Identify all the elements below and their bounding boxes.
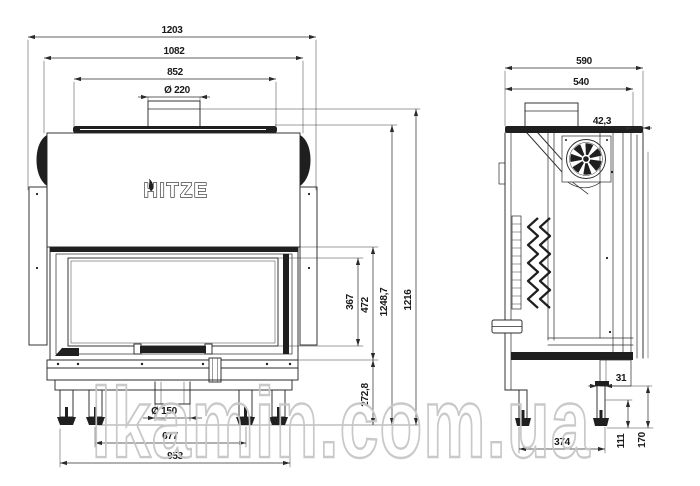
hitze-logo: HITZE [143, 179, 208, 203]
dim-label-door-height: 472 [360, 296, 371, 313]
dim-label-overall-width: 1203 [161, 25, 183, 36]
front-flue-collar [148, 101, 200, 127]
dim-front-overall-width: 1203 [28, 25, 316, 37]
side-heat-exchanger-fins [512, 216, 550, 309]
side-left-tab [499, 163, 505, 184]
adjustable-foot [57, 417, 76, 425]
hitze-logo-text: HITZE [143, 180, 208, 202]
side-top-plate [505, 126, 643, 133]
dim-front-body-width: 1082 [44, 46, 303, 58]
dim-label-body-depth: 540 [573, 77, 590, 88]
dim-glass-height: 367 [345, 258, 358, 346]
front-top-plate [73, 126, 277, 133]
fireplace-technical-drawing: HITZE [0, 0, 700, 486]
dim-flue-diameter: Ø 220 [138, 85, 210, 97]
dim-side-body-depth: 540 [505, 77, 633, 89]
dim-label-top-plate-width: 852 [167, 67, 184, 78]
door-hinge-strip [283, 254, 289, 354]
adjustable-foot [593, 418, 609, 426]
door-glass [68, 258, 278, 346]
side-door-handle [492, 320, 522, 333]
front-left-edge-curve [37, 135, 48, 186]
dim-label-flue-diameter: Ø 220 [164, 85, 190, 96]
dim-label-glass-height: 367 [345, 293, 356, 310]
dim-label-height-with-collar: 1248,7 [379, 287, 390, 317]
front-right-edge-curve [300, 135, 311, 186]
watermark: lkamin.com.ua [91, 368, 590, 479]
dim-front-top-plate-width: 852 [74, 67, 276, 79]
dim-label-base-clearance: 170 [637, 431, 648, 448]
dim-side-overall-depth: 590 [505, 56, 643, 68]
front-side-wings [29, 187, 317, 345]
dim-label-foot-height: 111 [616, 433, 627, 448]
door-handle [134, 344, 212, 354]
dim-label-leg-thickness: 31 [616, 373, 627, 384]
dim-label-body-width: 1082 [163, 46, 185, 57]
convection-fan [562, 136, 611, 182]
technical-drawing-page: HITZE [0, 0, 700, 486]
dim-side-base-clearance: 170 [637, 386, 648, 448]
side-flue-collar [525, 103, 578, 127]
dim-label-overall-depth: 590 [576, 56, 593, 67]
dim-label-rear-offset: 42,3 [593, 116, 612, 127]
door-corner-bracket [55, 348, 79, 356]
dim-door-height: 472 [360, 247, 373, 360]
dim-side-foot-height: 111 [616, 400, 628, 448]
front-door [50, 247, 298, 360]
dim-label-total-height: 1216 [403, 289, 414, 311]
zigzag-fin [540, 218, 550, 308]
zigzag-fin [528, 218, 538, 308]
